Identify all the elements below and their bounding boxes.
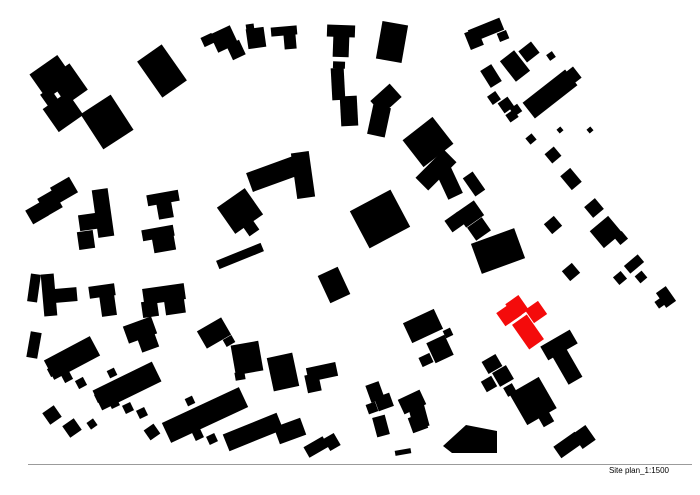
building-footprint-west-cross	[77, 230, 95, 250]
building-footprint-west-row-ell	[99, 293, 117, 317]
building-footprint-east-dot-2	[584, 198, 604, 218]
highlighted-building-site-building	[512, 315, 544, 350]
building-footprint-ne-dots	[586, 126, 593, 133]
building-footprint-sw-dots	[86, 418, 97, 429]
building-footprint-terrace-a	[75, 377, 87, 389]
building-footprint-nw-cluster-3	[137, 44, 187, 97]
building-footprint-east-dot-1	[544, 216, 562, 234]
building-footprint-east-bits	[635, 271, 648, 284]
building-footprint-south-rect	[267, 353, 300, 392]
building-footprint-sw-dots	[42, 405, 61, 424]
building-footprint-east-dot-3	[562, 263, 580, 281]
building-footprint-nw-cluster-2	[80, 95, 133, 150]
building-footprint-south-zigzag	[403, 309, 443, 343]
building-footprint-east-bits	[624, 254, 644, 273]
building-footprint-mid-s-shape	[331, 68, 346, 101]
building-footprint-center-elbow	[246, 156, 300, 192]
building-footprint-south-square-foot	[234, 371, 245, 381]
building-footprint-sw-dots	[144, 424, 161, 441]
building-footprint-ne-dots	[525, 133, 536, 144]
building-footprint-west-row-tee	[41, 274, 58, 317]
building-footprint-ne-dots	[545, 147, 562, 164]
building-footprint-center-small-rect	[318, 267, 351, 303]
building-footprint-south-zigzag	[418, 353, 433, 367]
building-footprint-center-t-upper	[156, 200, 174, 219]
building-footprint-terrace-d	[223, 413, 284, 451]
building-footprint-terrace-b	[122, 402, 134, 414]
building-footprint-south-wedge	[443, 425, 497, 453]
building-footprint-ne-dots	[560, 168, 582, 190]
building-footprint-mid-s-shape	[340, 96, 359, 127]
building-footprint-south-sliver	[395, 448, 412, 456]
building-footprint-north-arc-3	[283, 33, 296, 50]
building-footprint-north-arc-4	[333, 61, 345, 68]
building-footprint-terrace-c	[185, 396, 196, 407]
building-footprint-center-trapezoid	[350, 190, 410, 249]
building-footprint-terrace-b	[136, 407, 148, 419]
building-footprint-north-arc-2	[246, 23, 255, 30]
building-footprint-se-cluster	[481, 376, 497, 392]
building-footprint-north-arc-5	[376, 21, 408, 63]
building-footprint-east-edge-bar	[463, 172, 485, 197]
building-footprint-terrace-b	[107, 368, 118, 379]
building-footprint-center-elbow	[291, 151, 315, 199]
building-footprint-sw-dots	[62, 418, 81, 437]
building-footprint-west-row-notched	[164, 299, 186, 316]
building-footprint-east-diamond-cluster	[590, 216, 623, 248]
building-footprint-south-bar	[372, 415, 390, 438]
building-footprint-ne-boot	[518, 42, 539, 63]
building-footprint-east-bits	[613, 271, 627, 285]
building-footprint-ne-dots	[546, 51, 556, 61]
building-footprint-center-thin-bar	[216, 243, 264, 269]
scale-label: Site plan_1:1500	[609, 466, 669, 476]
site-plan-page: Site plan_1:1500	[0, 0, 700, 495]
building-footprint-north-arc-4	[333, 35, 350, 58]
building-footprint-ne-small-1	[480, 64, 502, 88]
building-footprint-west-row-tee	[54, 287, 77, 303]
building-footprint-west-cross	[78, 213, 98, 231]
building-footprint-ne-dots	[556, 126, 563, 133]
building-footprint-se-ell	[552, 347, 583, 384]
building-footprint-band-wedge	[26, 331, 41, 359]
building-footprint-terrace-b	[93, 362, 162, 411]
building-footprint-south-chevron-1	[323, 433, 340, 451]
site-plan-map	[0, 0, 700, 495]
building-footprint-terrace-c	[206, 433, 218, 445]
building-footprint-mid-knee	[367, 104, 391, 137]
building-footprint-west-row-notched	[141, 300, 159, 318]
building-footprint-west-row-wedge	[27, 273, 41, 302]
footer-rule	[28, 464, 692, 465]
building-footprint-south-square-foot	[231, 341, 264, 375]
